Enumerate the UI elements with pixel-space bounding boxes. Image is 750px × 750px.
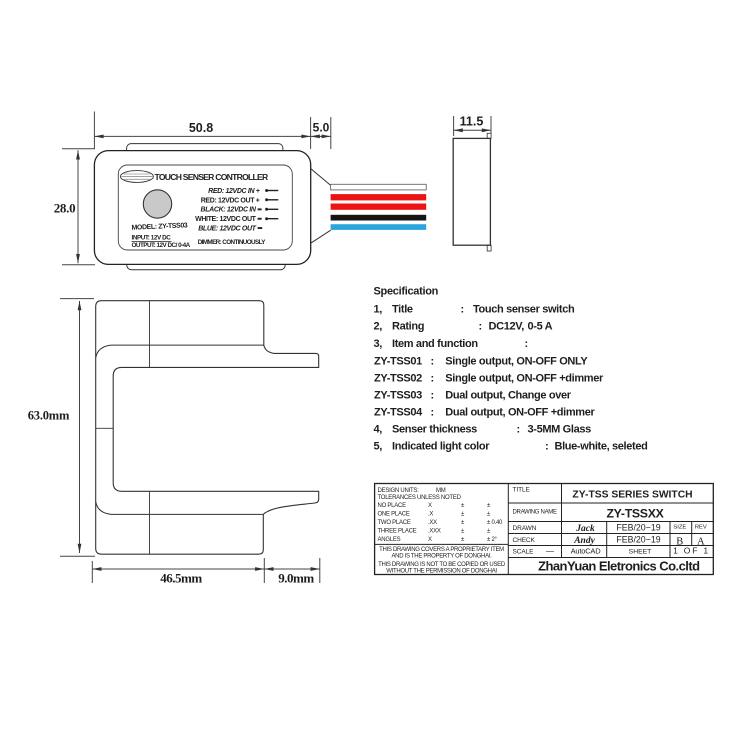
svg-text:Title: Title: [392, 304, 413, 316]
svg-text:INPUT: 12V DC: INPUT: 12V DC: [132, 235, 172, 242]
svg-text:BLACK: 12VDC IN: BLACK: 12VDC IN: [201, 207, 257, 214]
svg-text::: :: [431, 389, 434, 401]
svg-text::: :: [431, 355, 434, 367]
svg-text:ZY-TSS SERIES SWITCH: ZY-TSS SERIES SWITCH: [572, 490, 692, 501]
svg-text:.XX: .XX: [428, 520, 437, 526]
svg-text::: :: [431, 372, 434, 384]
svg-text:TOUCH SENSER CONTROLLER: TOUCH SENSER CONTROLLER: [155, 172, 269, 182]
svg-text:63.0mm: 63.0mm: [28, 409, 70, 423]
svg-text:SCALE: SCALE: [513, 549, 535, 556]
svg-text:±: ±: [487, 511, 491, 517]
svg-text:± 2°: ± 2°: [487, 537, 498, 543]
svg-text:OUTPUT: 12V DC/ 0-4A: OUTPUT: 12V DC/ 0-4A: [132, 242, 191, 249]
svg-text:AND IS THE PROPERTY OF DONGHAI: AND IS THE PROPERTY OF DONGHAI.: [391, 553, 492, 559]
svg-text:RED: 12VDC OUT +: RED: 12VDC OUT +: [201, 197, 260, 204]
svg-text:Touch senser switch: Touch senser switch: [473, 304, 575, 316]
svg-text:46.5mm: 46.5mm: [160, 571, 202, 586]
svg-text:BLUE: 12VDC OUT: BLUE: 12VDC OUT: [198, 225, 256, 232]
svg-text:± 0.40: ± 0.40: [487, 520, 503, 526]
svg-text:ZY-TSS03: ZY-TSS03: [374, 389, 422, 401]
svg-text:TITLE: TITLE: [513, 487, 531, 494]
svg-text:WITHOUT THE PERMISSION OF DONG: WITHOUT THE PERMISSION OF DONGHAI: [386, 569, 497, 575]
svg-text:ZY-TSSXX: ZY-TSSXX: [606, 507, 664, 521]
svg-text:—: —: [546, 547, 554, 556]
svg-text:5.0: 5.0: [313, 121, 330, 135]
svg-text:Blue-white, seleted: Blue-white, seleted: [555, 441, 648, 453]
svg-text:TOLERANCES UNLESS NOTED: TOLERANCES UNLESS NOTED: [378, 495, 462, 501]
svg-text:±: ±: [487, 529, 491, 535]
svg-text:ZhanYuan Eletronics Co.cltd: ZhanYuan Eletronics Co.cltd: [538, 558, 700, 573]
svg-text:WHITE: 12VDC OUT: WHITE: 12VDC OUT: [195, 216, 257, 223]
svg-text:TWO PLACE: TWO PLACE: [378, 520, 411, 526]
svg-text:Andy: Andy: [573, 536, 595, 546]
svg-text:±: ±: [461, 520, 465, 526]
svg-text:ZY-TSS04: ZY-TSS04: [374, 406, 423, 418]
svg-text:ONE PLACE: ONE PLACE: [378, 511, 410, 517]
svg-text:±: ±: [487, 503, 491, 509]
svg-text:RED: 12VDC IN +: RED: 12VDC IN +: [208, 188, 260, 195]
svg-text:DRAWING NAME: DRAWING NAME: [513, 510, 557, 516]
svg-text:Dual output, ON-OFF +dimmer: Dual output, ON-OFF +dimmer: [445, 406, 595, 418]
svg-text:2,: 2,: [374, 321, 383, 333]
svg-text:ZY-TSS02: ZY-TSS02: [374, 372, 422, 384]
svg-text:FEB/20−19: FEB/20−19: [616, 523, 660, 533]
svg-text:DRAWN: DRAWN: [513, 525, 537, 532]
svg-text:.XXX: .XXX: [428, 529, 441, 535]
svg-text:ZY-TSS01: ZY-TSS01: [374, 355, 422, 367]
svg-text:Specification: Specification: [374, 286, 439, 298]
svg-text:0-5 A: 0-5 A: [528, 321, 553, 333]
svg-text:.X: .X: [428, 511, 433, 517]
svg-text:X: X: [428, 503, 432, 509]
svg-text:DESIGN UNITS:: DESIGN UNITS:: [378, 488, 420, 494]
svg-text::: :: [545, 441, 548, 453]
svg-text:Item and function: Item and function: [392, 338, 478, 350]
svg-text:NO PLACE: NO PLACE: [378, 503, 407, 509]
svg-text:Dual output, Change over: Dual output, Change over: [445, 389, 572, 401]
svg-text:FEB/20−19: FEB/20−19: [616, 535, 660, 545]
svg-text:1,: 1,: [374, 304, 383, 316]
svg-text:±: ±: [461, 503, 465, 509]
svg-text::: :: [479, 321, 482, 333]
svg-text:4,: 4,: [374, 423, 383, 435]
svg-text:DIMMER: CONTINUOUSLY: DIMMER: CONTINUOUSLY: [198, 239, 267, 246]
svg-text::: :: [517, 423, 520, 435]
svg-text:SIZE: SIZE: [673, 525, 686, 531]
svg-text:±: ±: [461, 537, 465, 543]
svg-text:CHECK: CHECK: [513, 537, 536, 544]
svg-text:50.8: 50.8: [189, 121, 213, 135]
svg-text:11.5: 11.5: [460, 115, 484, 129]
svg-text:THREE PLACE: THREE PLACE: [378, 529, 417, 535]
svg-text:Rating: Rating: [392, 321, 424, 333]
svg-text:THIS DRAWING IS NOT TO BE COPI: THIS DRAWING IS NOT TO BE COPIED OR USED: [378, 562, 506, 568]
svg-text::: :: [431, 406, 434, 418]
svg-text:SHEET: SHEET: [629, 548, 652, 555]
svg-text:ANGLES: ANGLES: [378, 537, 401, 543]
svg-text:Senser thickness: Senser thickness: [392, 423, 477, 435]
svg-text::: :: [461, 304, 464, 316]
svg-text:Indicated light color: Indicated light color: [392, 441, 490, 453]
svg-text:MM: MM: [436, 488, 446, 494]
svg-text:1 OF 1: 1 OF 1: [673, 546, 710, 556]
svg-text:Single output, ON-OFF +dimmer: Single output, ON-OFF +dimmer: [445, 372, 604, 384]
svg-text:28.0: 28.0: [54, 201, 76, 216]
svg-text:9.0mm: 9.0mm: [278, 571, 314, 586]
svg-text:DC12V,: DC12V,: [489, 321, 525, 333]
svg-text:THIS DRAWING COVERS A PROPRIET: THIS DRAWING COVERS A PROPRIETARY ITEM: [379, 547, 504, 553]
svg-text:REV: REV: [695, 525, 707, 531]
svg-text::: :: [525, 338, 528, 350]
svg-text:±: ±: [461, 529, 465, 535]
svg-text:AutoCAD: AutoCAD: [571, 547, 602, 556]
svg-text:3-5MM Glass: 3-5MM Glass: [528, 423, 592, 435]
svg-text:3,: 3,: [374, 338, 383, 350]
svg-text:Jack: Jack: [575, 524, 595, 534]
svg-text:Single output, ON-OFF ONLY: Single output, ON-OFF ONLY: [445, 355, 588, 367]
svg-text:±: ±: [461, 511, 465, 517]
svg-text:X: X: [428, 537, 432, 543]
svg-text:5,: 5,: [374, 441, 383, 453]
